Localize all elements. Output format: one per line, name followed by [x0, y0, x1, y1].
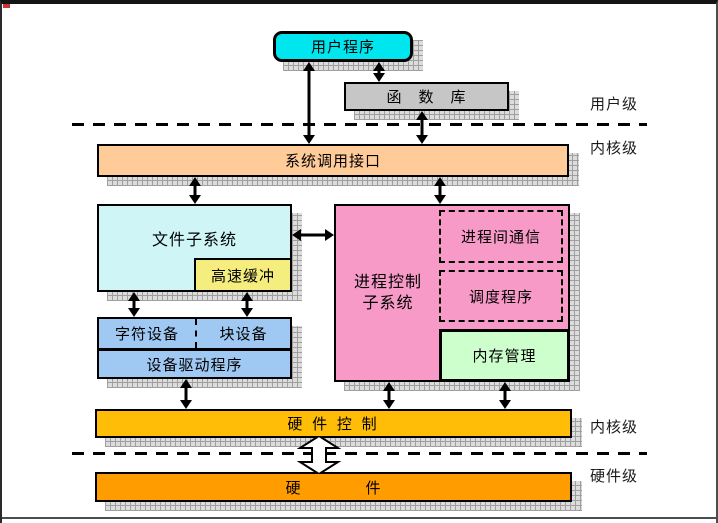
- device-top-row: 字符设备 块设备: [99, 319, 290, 351]
- scheduler-box: 调度程序: [439, 270, 563, 322]
- label-hardware-level: 硬件级: [590, 465, 662, 486]
- hollow-arrow-hwcontrol-hardware: [297, 436, 341, 474]
- arrow-buffer-cache-devices: [240, 292, 254, 317]
- label-kernel-level-top: 内核级: [590, 137, 662, 158]
- memory-management-box: 内存管理: [439, 329, 570, 382]
- hardware-control-box: 硬 件 控 制: [95, 409, 572, 438]
- process-subsystem-box: 进程控制 子系统 进程间通信 调度程序 内存管理: [334, 204, 570, 382]
- arrow-user-program-syscall: [302, 62, 316, 144]
- arrow-process-hwcontrol: [382, 382, 396, 409]
- frame-bottom-line: [2, 517, 716, 519]
- function-library-box: 函 数 库: [344, 82, 509, 111]
- user-program-box: 用户程序: [273, 31, 413, 62]
- syscall-interface-box: 系统调用接口: [97, 144, 569, 177]
- block-device-cell: 块设备: [197, 319, 290, 348]
- hardware-box: 硬 件: [95, 472, 572, 502]
- file-subsystem-label: 文件子系统: [152, 226, 237, 250]
- arrow-syscall-file-subsystem: [188, 177, 202, 204]
- arrow-syscall-process-subsystem: [433, 177, 447, 204]
- process-subsystem-label: 进程控制 子系统: [336, 272, 440, 314]
- arrow-file-process: [292, 228, 334, 242]
- arrow-user-program-library: [372, 62, 386, 82]
- diagram-canvas: 用户级 内核级 内核级 硬件级 用户程序 函 数 库 系统调用接口 文件子系统 …: [0, 0, 718, 523]
- arrow-memory-hwcontrol: [498, 382, 512, 409]
- device-driver-cell: 设备驱动程序: [99, 351, 290, 377]
- ipc-box: 进程间通信: [439, 210, 563, 263]
- corner-red-mark: [3, 4, 10, 8]
- label-user-level: 用户级: [590, 93, 662, 114]
- device-box: 字符设备 块设备 设备驱动程序: [97, 317, 292, 379]
- char-device-cell: 字符设备: [99, 319, 197, 348]
- arrow-library-syscall: [415, 111, 429, 144]
- arrow-file-subsystem-devices: [127, 292, 141, 317]
- kernel-hardware-divider: [72, 452, 647, 455]
- buffer-cache-box: 高速缓冲: [194, 258, 292, 292]
- label-kernel-level-bottom: 内核级: [590, 416, 662, 437]
- arrow-driver-hwcontrol: [179, 379, 193, 409]
- user-kernel-divider: [72, 123, 647, 126]
